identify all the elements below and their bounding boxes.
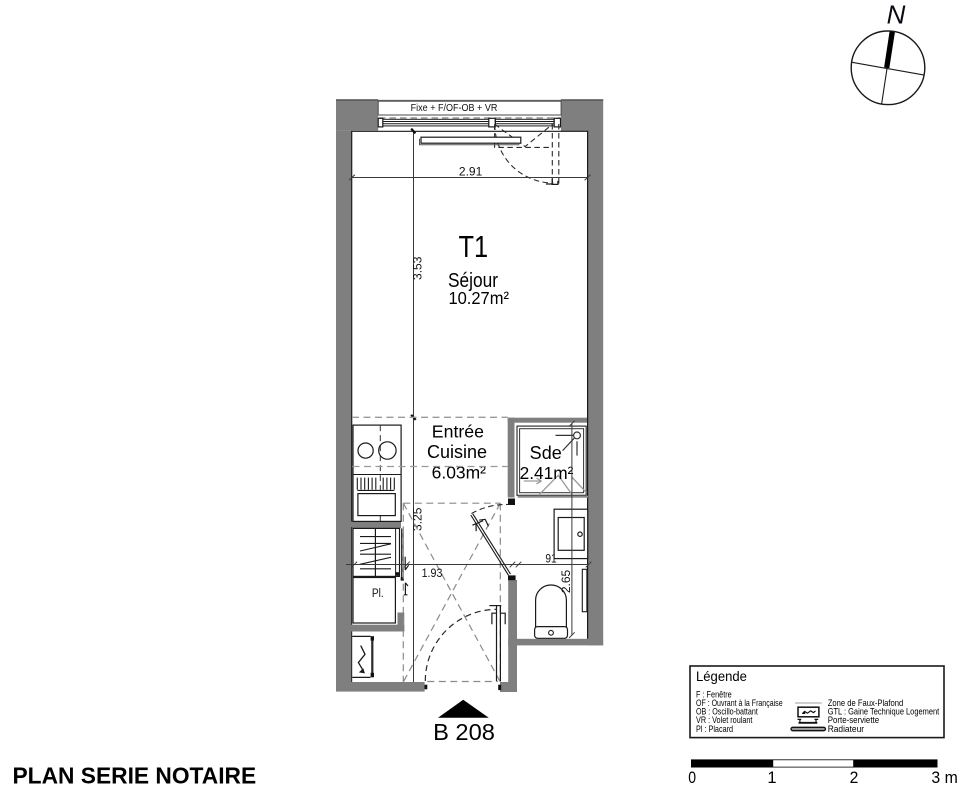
svg-text:Pl : Placard: Pl : Placard [696,723,733,734]
svg-text:10.27m²: 10.27m² [448,287,509,308]
svg-text:Fixe + F/OF-OB + VR: Fixe + F/OF-OB + VR [411,103,498,115]
svg-text:2.41m²: 2.41m² [520,463,574,483]
svg-text:3 m: 3 m [931,769,957,787]
svg-text:1.93: 1.93 [422,568,443,580]
svg-text:Cuisine: Cuisine [427,442,487,462]
svg-text:Pl.: Pl. [372,587,384,600]
svg-text:Radiateur: Radiateur [828,723,864,734]
svg-text:6.03m²: 6.03m² [432,462,486,482]
svg-text:Sde: Sde [530,443,562,463]
svg-text:N: N [887,0,906,30]
svg-text:T1: T1 [458,230,488,265]
svg-text:3.53: 3.53 [411,256,425,280]
svg-text:Légende: Légende [696,669,747,684]
svg-text:2.91: 2.91 [459,164,483,178]
svg-text:0: 0 [688,769,696,787]
svg-text:2: 2 [850,769,859,787]
svg-text:B 208: B 208 [433,719,495,745]
svg-text:2.65: 2.65 [559,569,573,593]
svg-text:1: 1 [767,769,776,787]
svg-text:PLAN SERIE NOTAIRE: PLAN SERIE NOTAIRE [13,762,257,788]
svg-text:Entrée: Entrée [432,421,484,441]
